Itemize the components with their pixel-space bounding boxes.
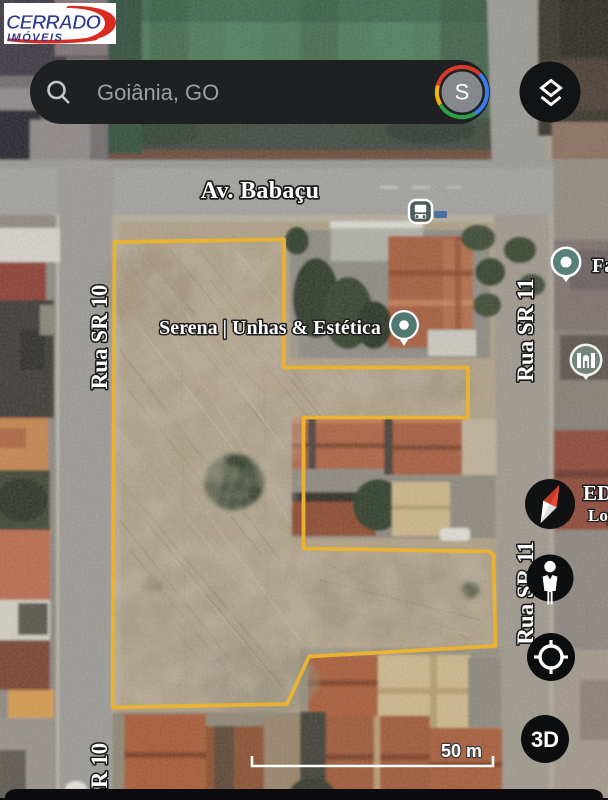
svg-text:Loj: Loj	[588, 506, 608, 525]
svg-text:Serena | Unhas & Estética: Serena | Unhas & Estética	[159, 317, 381, 339]
svg-text:Goiânia, GO: Goiânia, GO	[97, 80, 219, 105]
svg-text:3D: 3D	[531, 727, 559, 752]
svg-text:Av. Babaçu: Av. Babaçu	[201, 178, 320, 204]
svg-text:Rua SR 11: Rua SR 11	[513, 278, 538, 382]
svg-text:50 m: 50 m	[441, 741, 482, 761]
svg-text:S: S	[455, 80, 470, 105]
svg-text:IMÓVEIS: IMÓVEIS	[7, 31, 63, 44]
svg-text:Fa: Fa	[592, 255, 608, 277]
svg-text:Rua SR 10: Rua SR 10	[87, 285, 112, 390]
svg-text:CERRADO: CERRADO	[6, 12, 102, 34]
svg-text:ED: ED	[583, 481, 608, 505]
